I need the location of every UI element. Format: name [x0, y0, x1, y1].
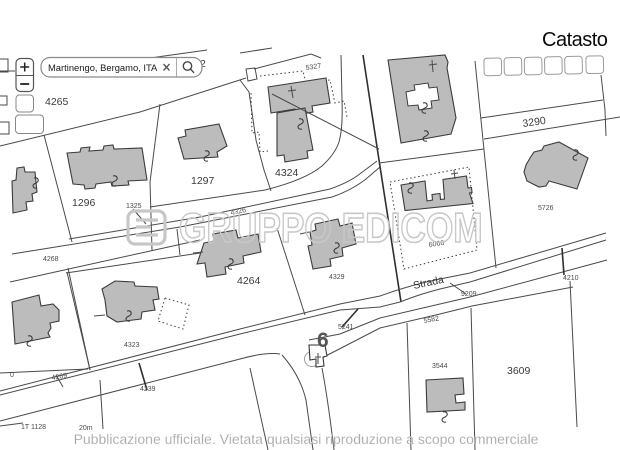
svg-text:GRUPPO EDICOM: GRUPPO EDICOM — [179, 205, 483, 252]
svg-text:6: 6 — [317, 329, 329, 352]
svg-text:4268: 4268 — [43, 256, 59, 263]
svg-text:4239: 4239 — [140, 386, 156, 393]
svg-text:4323: 4323 — [124, 342, 140, 349]
svg-text:4324: 4324 — [275, 167, 299, 179]
svg-text:4210: 4210 — [563, 275, 579, 282]
svg-text:3544: 3544 — [432, 363, 448, 370]
svg-text:5726: 5726 — [538, 205, 554, 212]
svg-text:4264: 4264 — [237, 275, 261, 287]
svg-text:Catasto: Catasto — [542, 29, 608, 51]
svg-text:Martinengo, Bergamo, ITA: Martinengo, Bergamo, ITA — [48, 62, 158, 73]
svg-text:1325: 1325 — [126, 203, 142, 210]
svg-text:4329: 4329 — [329, 274, 345, 281]
svg-text:1296: 1296 — [72, 197, 96, 209]
svg-text:4265: 4265 — [45, 96, 69, 108]
svg-text:Pubblicazione ufficiale. Vieta: Pubblicazione ufficiale. Vietata qualsia… — [74, 431, 539, 447]
svg-text:1T 1128: 1T 1128 — [21, 424, 46, 431]
svg-text:5241: 5241 — [338, 324, 354, 331]
svg-text:1297: 1297 — [191, 175, 215, 187]
svg-text:3609: 3609 — [507, 365, 531, 377]
svg-text:0: 0 — [10, 372, 14, 379]
svg-text:9209: 9209 — [461, 291, 477, 298]
